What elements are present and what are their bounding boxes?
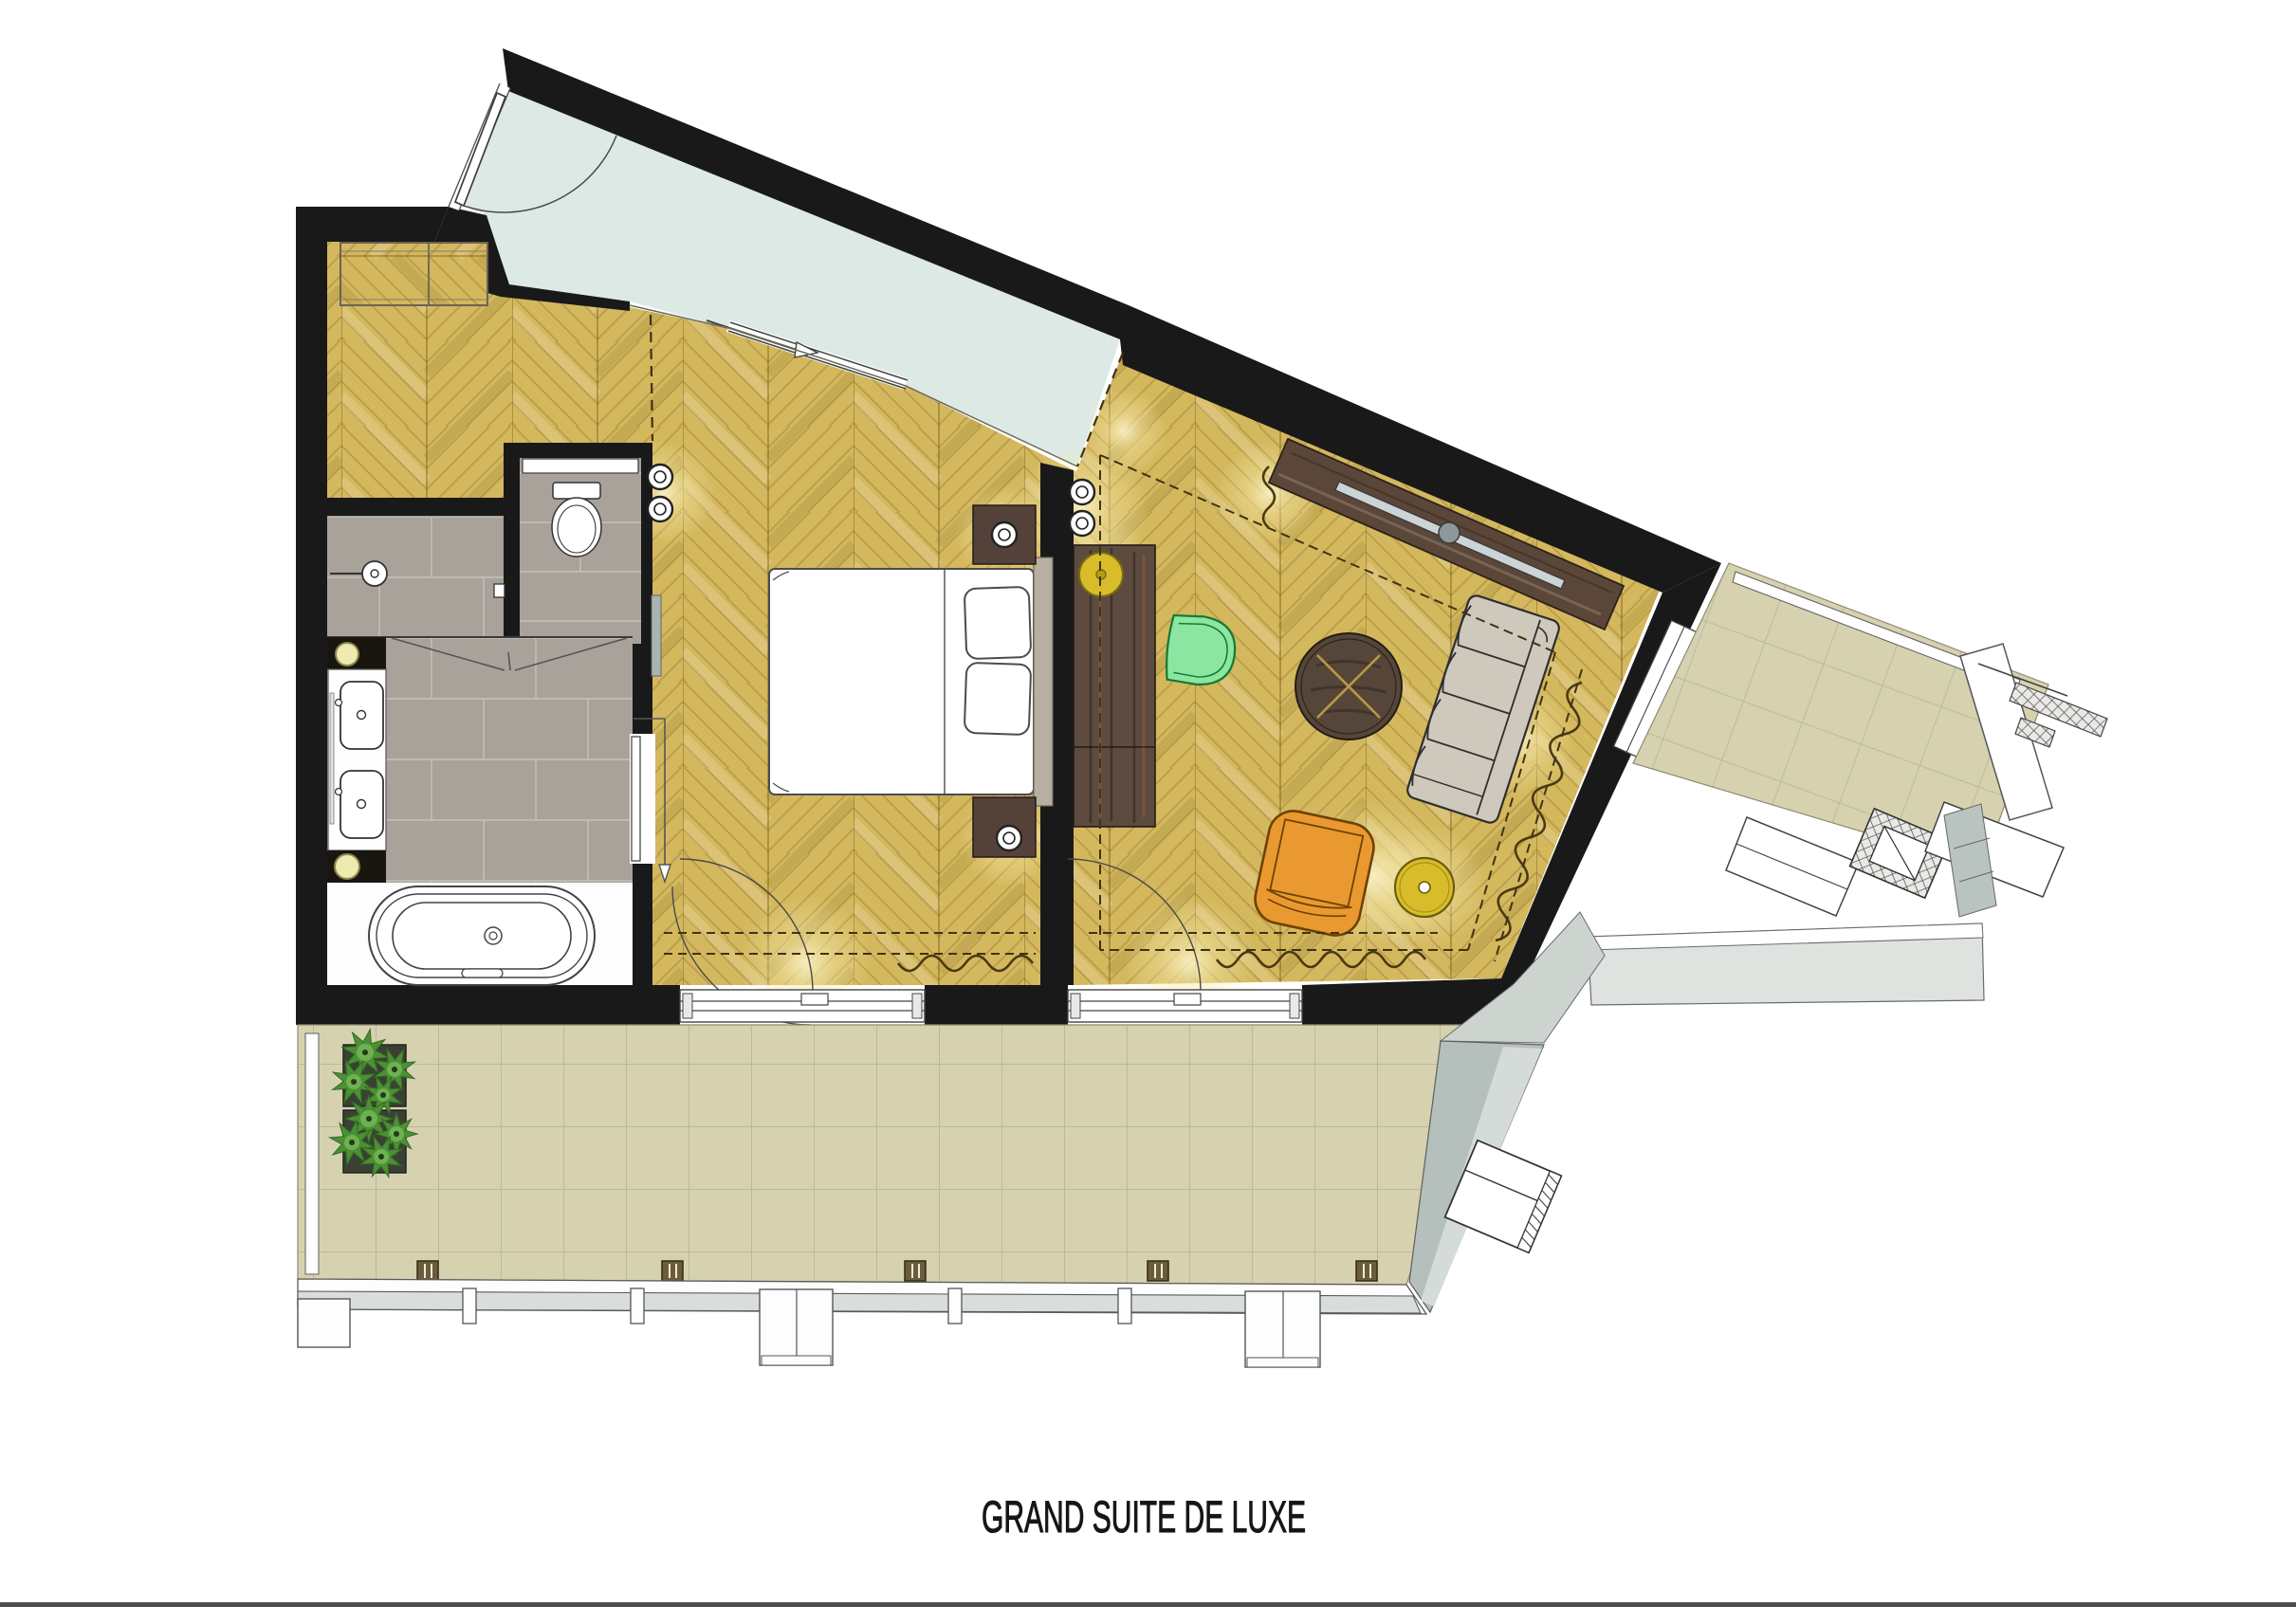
svg-text:GRAND SUITE DE LUXE: GRAND SUITE DE LUXE: [982, 1491, 1306, 1542]
